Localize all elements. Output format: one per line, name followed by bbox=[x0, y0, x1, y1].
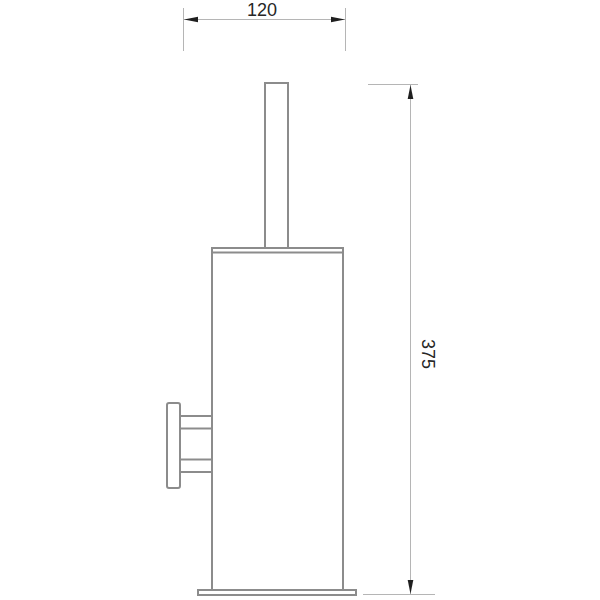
drawing-page: 120 375 bbox=[0, 0, 600, 600]
width-dimension-label: 120 bbox=[247, 0, 277, 20]
width-arrow-left-icon bbox=[184, 17, 198, 23]
holder-body-outline bbox=[212, 248, 343, 590]
height-arrow-top-icon bbox=[408, 85, 414, 99]
brush-handle-outline bbox=[265, 83, 288, 248]
width-arrow-right-icon bbox=[331, 17, 345, 23]
holder-base-outline bbox=[198, 590, 356, 595]
dimension-lines-group bbox=[184, 8, 436, 595]
wall-mount-plate-outline bbox=[167, 403, 180, 488]
height-arrow-bottom-icon bbox=[408, 580, 414, 594]
height-dimension-label: 375 bbox=[418, 339, 438, 369]
technical-drawing: 120 375 bbox=[0, 0, 600, 600]
dimension-arrows-group bbox=[184, 17, 413, 594]
product-outline-group bbox=[167, 83, 356, 595]
